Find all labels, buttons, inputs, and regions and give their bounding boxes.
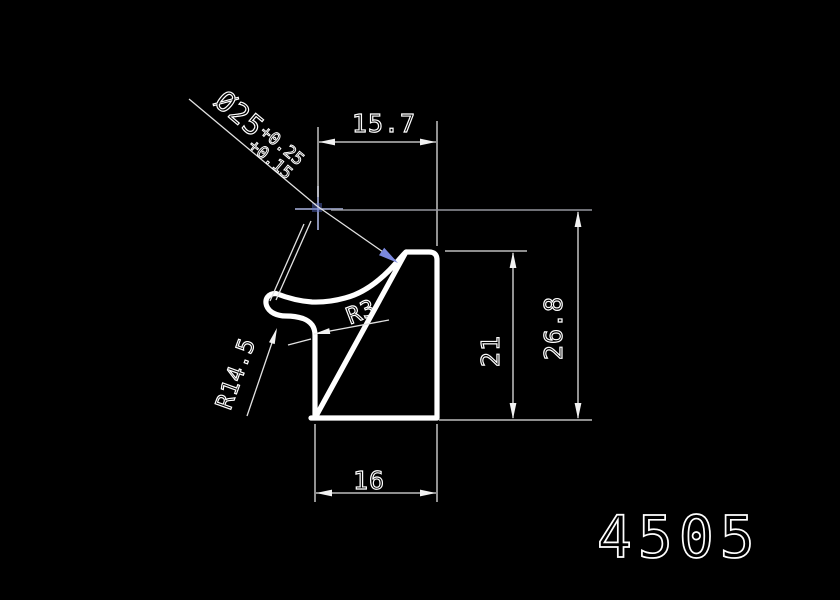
center-grip: [312, 203, 322, 212]
dim-label-side-height: 21: [476, 335, 505, 367]
dim-label-bottom-width: 16: [353, 466, 385, 495]
dim-label-overall-height: 26.8: [539, 296, 568, 360]
dim-label-top-width: 15.7: [352, 109, 416, 138]
drawing-svg: 15.7 26.8 21 16 R3 R14.5: [0, 0, 840, 600]
part-number-label: 4505: [597, 503, 761, 571]
cad-drawing-canvas[interactable]: 15.7 26.8 21 16 R3 R14.5: [0, 0, 840, 600]
